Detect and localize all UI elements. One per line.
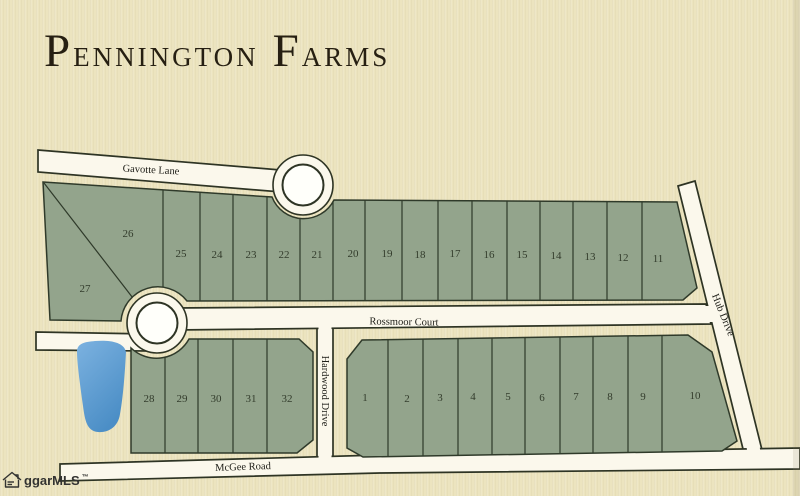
lot-number: 23 (246, 249, 258, 261)
junction-patch-rossmoor-hardwood (319, 320, 332, 336)
lot-number: 27 (80, 283, 92, 295)
lot-number: 20 (348, 248, 360, 260)
watermark-label: ggarMLS (24, 473, 80, 488)
watermark: ggarMLS™ (2, 471, 89, 489)
road-rossmoor-court (175, 304, 711, 330)
road-label-rossmoor-court: Rossmoor Court (369, 316, 438, 328)
lot-number: 7 (573, 391, 579, 403)
culdesac-rossmoor-inner (137, 303, 178, 344)
lot-number: 9 (640, 391, 646, 403)
lot-number: 24 (212, 249, 224, 261)
lot-number: 16 (484, 249, 496, 261)
lot-number: 11 (653, 253, 664, 265)
road-label-hardwood-drive: Hardwood Drive (319, 356, 330, 427)
junction-patch-hardwood-mcgee (319, 452, 332, 462)
culdesac-gavotte-inner (283, 165, 324, 206)
lot-number: 17 (450, 248, 462, 260)
title-word: FARMS (273, 53, 391, 70)
house-logo-icon (2, 471, 22, 489)
lot-number: 29 (177, 393, 189, 405)
lot-number: 28 (144, 393, 156, 405)
lot-number: 10 (690, 390, 702, 402)
map-title: PENNINGTONFARMS (44, 28, 404, 75)
lot-number: 21 (312, 249, 323, 261)
lot-number: 3 (437, 392, 443, 404)
lot-number: 19 (382, 248, 394, 260)
road-label-mcgee-road: McGee Road (215, 461, 272, 474)
lot-number: 13 (585, 251, 597, 263)
pond (77, 341, 126, 432)
lot-number: 26 (123, 228, 135, 240)
title-word: PENNINGTON (44, 53, 259, 70)
lot-number: 15 (517, 249, 529, 261)
lot-number: 32 (282, 393, 293, 405)
lot-number: 12 (618, 252, 629, 264)
lot-number: 22 (279, 249, 290, 261)
plat-map-root: 11 12 13 14 15 16 17 18 19 20 21 22 23 2… (0, 0, 800, 496)
lot-number: 5 (505, 391, 511, 403)
lot-number: 14 (551, 250, 563, 262)
junction-patch-hub-mcgee (746, 443, 761, 456)
lot-number: 2 (404, 393, 410, 405)
lot-number: 30 (211, 393, 223, 405)
lot-number: 18 (415, 249, 427, 261)
scan-edge-right (793, 0, 800, 496)
lot-number: 25 (176, 248, 188, 260)
lot-number: 1 (362, 392, 368, 404)
lot-number: 31 (246, 393, 257, 405)
lot-number: 6 (539, 392, 545, 404)
lot-number: 8 (607, 391, 613, 403)
lot-number: 4 (470, 391, 476, 403)
trademark-symbol: ™ (82, 474, 89, 481)
